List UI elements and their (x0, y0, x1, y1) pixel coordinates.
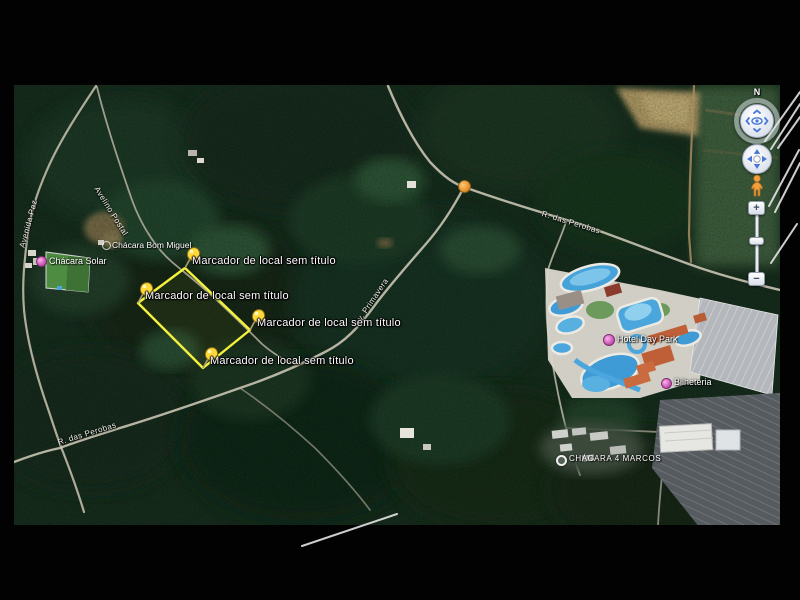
place-label-chacara-solar: Chácara Solar (49, 256, 107, 266)
place-label-chacara-marcos: CHÁCARA 4 MARCOS (569, 454, 661, 463)
marker-label[interactable]: Marcador de local sem título (210, 355, 354, 367)
place-label-bilheteria: Bilheteria (674, 377, 712, 387)
marker-label[interactable]: Marcador de local sem título (192, 255, 336, 267)
poi-icon-chacara-solar[interactable] (36, 256, 47, 267)
compass-north-button[interactable]: N (750, 87, 764, 97)
junction-marker-icon[interactable] (458, 180, 471, 193)
place-label-hotel: Hotel Day Park (617, 334, 678, 344)
poi-icon-bom-miguel[interactable] (102, 241, 111, 250)
pegman-icon[interactable] (748, 174, 766, 201)
marker-label[interactable]: Marcador de local sem título (257, 317, 401, 329)
poi-icon-hotel[interactable] (603, 334, 615, 346)
move-joystick[interactable] (742, 144, 772, 174)
chacara-marcos-structures (540, 422, 644, 474)
poi-icon-bilheteria[interactable] (661, 378, 672, 389)
look-joystick[interactable] (740, 104, 774, 138)
screenshot-stage: Avenida Paz Avelino Postal Av. Primavera… (0, 0, 800, 600)
poi-icon-chacara-marcos[interactable] (556, 455, 567, 466)
satellite-imagery (14, 85, 780, 525)
zoom-out-button[interactable]: − (748, 272, 765, 286)
zoom-in-button[interactable]: + (748, 201, 765, 215)
zoom-slider-knob[interactable] (749, 237, 764, 245)
marker-label[interactable]: Marcador de local sem título (145, 290, 289, 302)
satellite-map[interactable] (14, 85, 780, 525)
